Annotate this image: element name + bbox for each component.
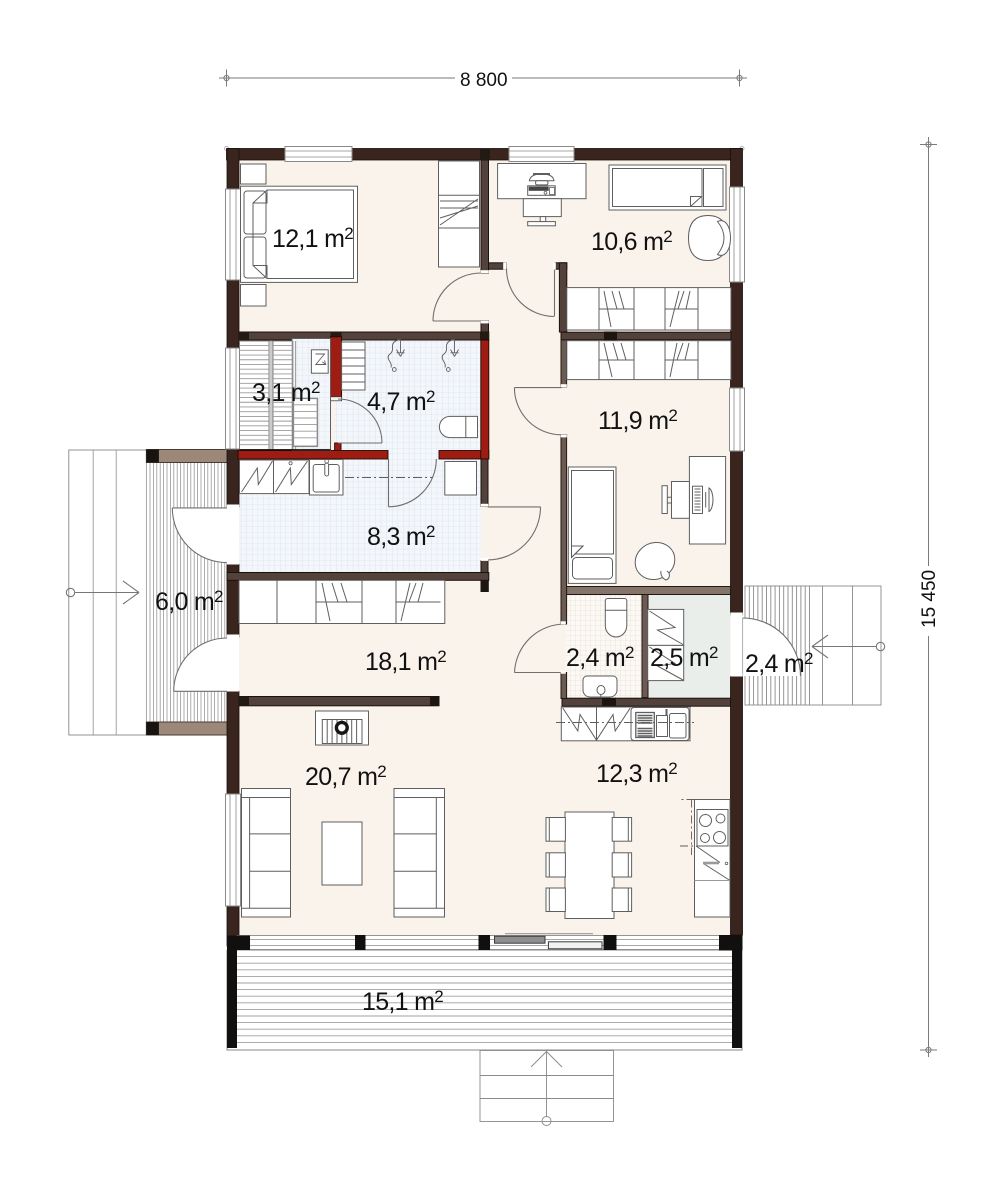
svg-text:12,1 m2: 12,1 m2: [272, 224, 353, 253]
svg-text:12,3 m2: 12,3 m2: [596, 759, 677, 788]
svg-text:8,3 m2: 8,3 m2: [367, 522, 435, 551]
svg-text:18,1 m2: 18,1 m2: [365, 647, 446, 676]
svg-text:15,1 m2: 15,1 m2: [362, 987, 443, 1016]
svg-text:6,0 m2: 6,0 m2: [155, 587, 223, 616]
svg-text:20,7 m2: 20,7 m2: [305, 762, 386, 791]
svg-text:15 450: 15 450: [919, 570, 940, 628]
svg-text:10,6 m2: 10,6 m2: [591, 227, 672, 256]
svg-text:11,9 m2: 11,9 m2: [598, 406, 677, 435]
svg-text:2,4 m2: 2,4 m2: [745, 649, 813, 678]
svg-text:3,1 m2: 3,1 m2: [252, 378, 320, 407]
svg-text:2,5 m2: 2,5 m2: [650, 643, 718, 672]
svg-text:2,4 m2: 2,4 m2: [566, 643, 634, 672]
svg-text:8 800: 8 800: [460, 70, 508, 91]
svg-text:4,7 m2: 4,7 m2: [367, 387, 435, 416]
